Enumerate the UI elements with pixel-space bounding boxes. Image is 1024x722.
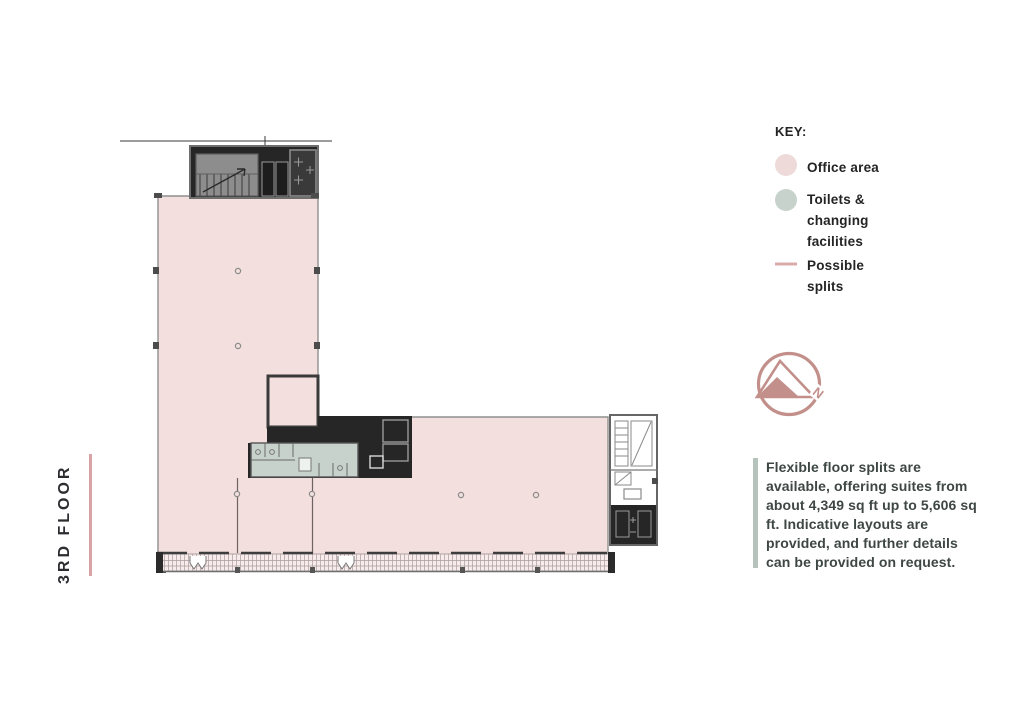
note-accent-bar xyxy=(753,458,758,568)
toilets-swatch-icon xyxy=(775,189,797,211)
compass-icon: N xyxy=(745,342,845,432)
legend-item-office-area: Office area xyxy=(807,157,879,178)
compass-north-label: N xyxy=(810,384,827,402)
legend-item-toilets: Toilets & changing facilities xyxy=(807,189,869,252)
corner-room xyxy=(268,376,318,427)
office-area-shape xyxy=(158,196,608,555)
split-line-swatch-icon xyxy=(775,262,797,266)
facade-windows xyxy=(156,552,615,573)
legend-heading: KEY: xyxy=(775,124,807,139)
stair-core-north xyxy=(190,146,318,198)
note-text: Flexible floor splits are available, off… xyxy=(766,458,984,572)
floorplan xyxy=(110,128,666,580)
legend-item-possible-splits: Possible splits xyxy=(807,255,864,297)
compass-ring xyxy=(759,354,820,415)
parapet-line xyxy=(120,136,332,146)
brochure-page: 3RD FLOOR xyxy=(0,0,1024,722)
legend: KEY: Office area Toilets & changing faci… xyxy=(775,118,955,318)
toilet-block xyxy=(251,443,358,477)
availability-note: Flexible floor splits are available, off… xyxy=(753,450,989,572)
floor-label: 3RD FLOOR xyxy=(56,452,74,584)
stair-core-east xyxy=(610,415,658,545)
office-area-swatch-icon xyxy=(775,154,797,176)
floor-label-accent-line xyxy=(89,454,92,576)
